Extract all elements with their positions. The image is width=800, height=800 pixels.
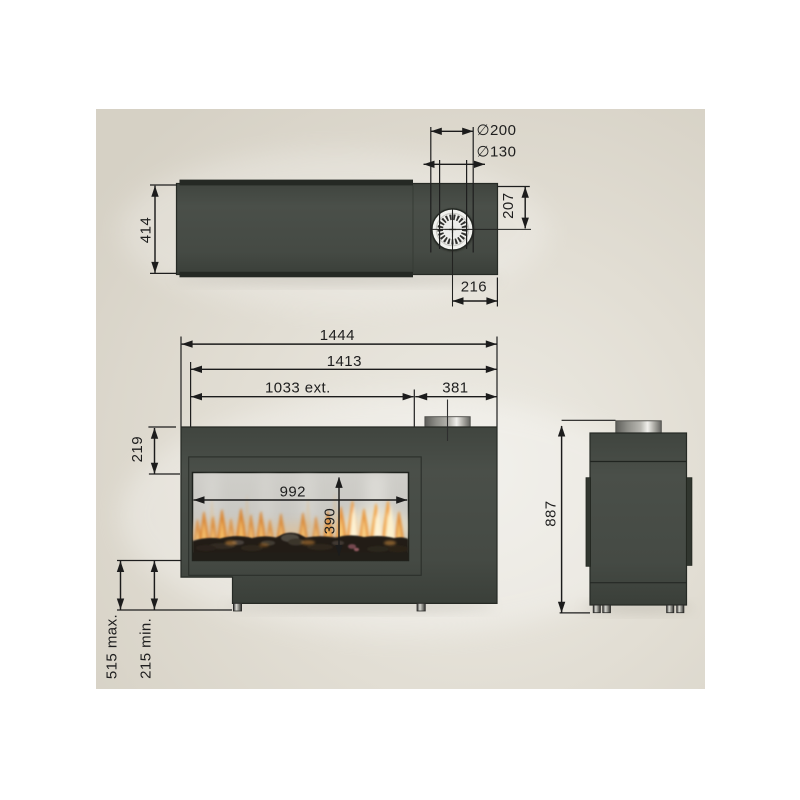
- svg-text:887: 887: [543, 500, 560, 526]
- svg-text:215 min.: 215 min.: [137, 618, 154, 679]
- svg-text:390: 390: [321, 508, 338, 534]
- svg-text:∅130: ∅130: [477, 143, 517, 160]
- svg-text:1444: 1444: [320, 327, 355, 344]
- svg-text:1413: 1413: [327, 353, 362, 370]
- svg-text:1033 ext.: 1033 ext.: [265, 380, 331, 397]
- svg-text:381: 381: [442, 380, 468, 397]
- svg-text:515 max.: 515 max.: [104, 614, 121, 679]
- svg-text:216: 216: [461, 279, 487, 296]
- svg-text:414: 414: [137, 217, 154, 243]
- svg-text:992: 992: [280, 484, 306, 501]
- svg-text:219: 219: [129, 436, 146, 462]
- svg-text:∅200: ∅200: [477, 122, 517, 139]
- svg-text:207: 207: [500, 193, 517, 219]
